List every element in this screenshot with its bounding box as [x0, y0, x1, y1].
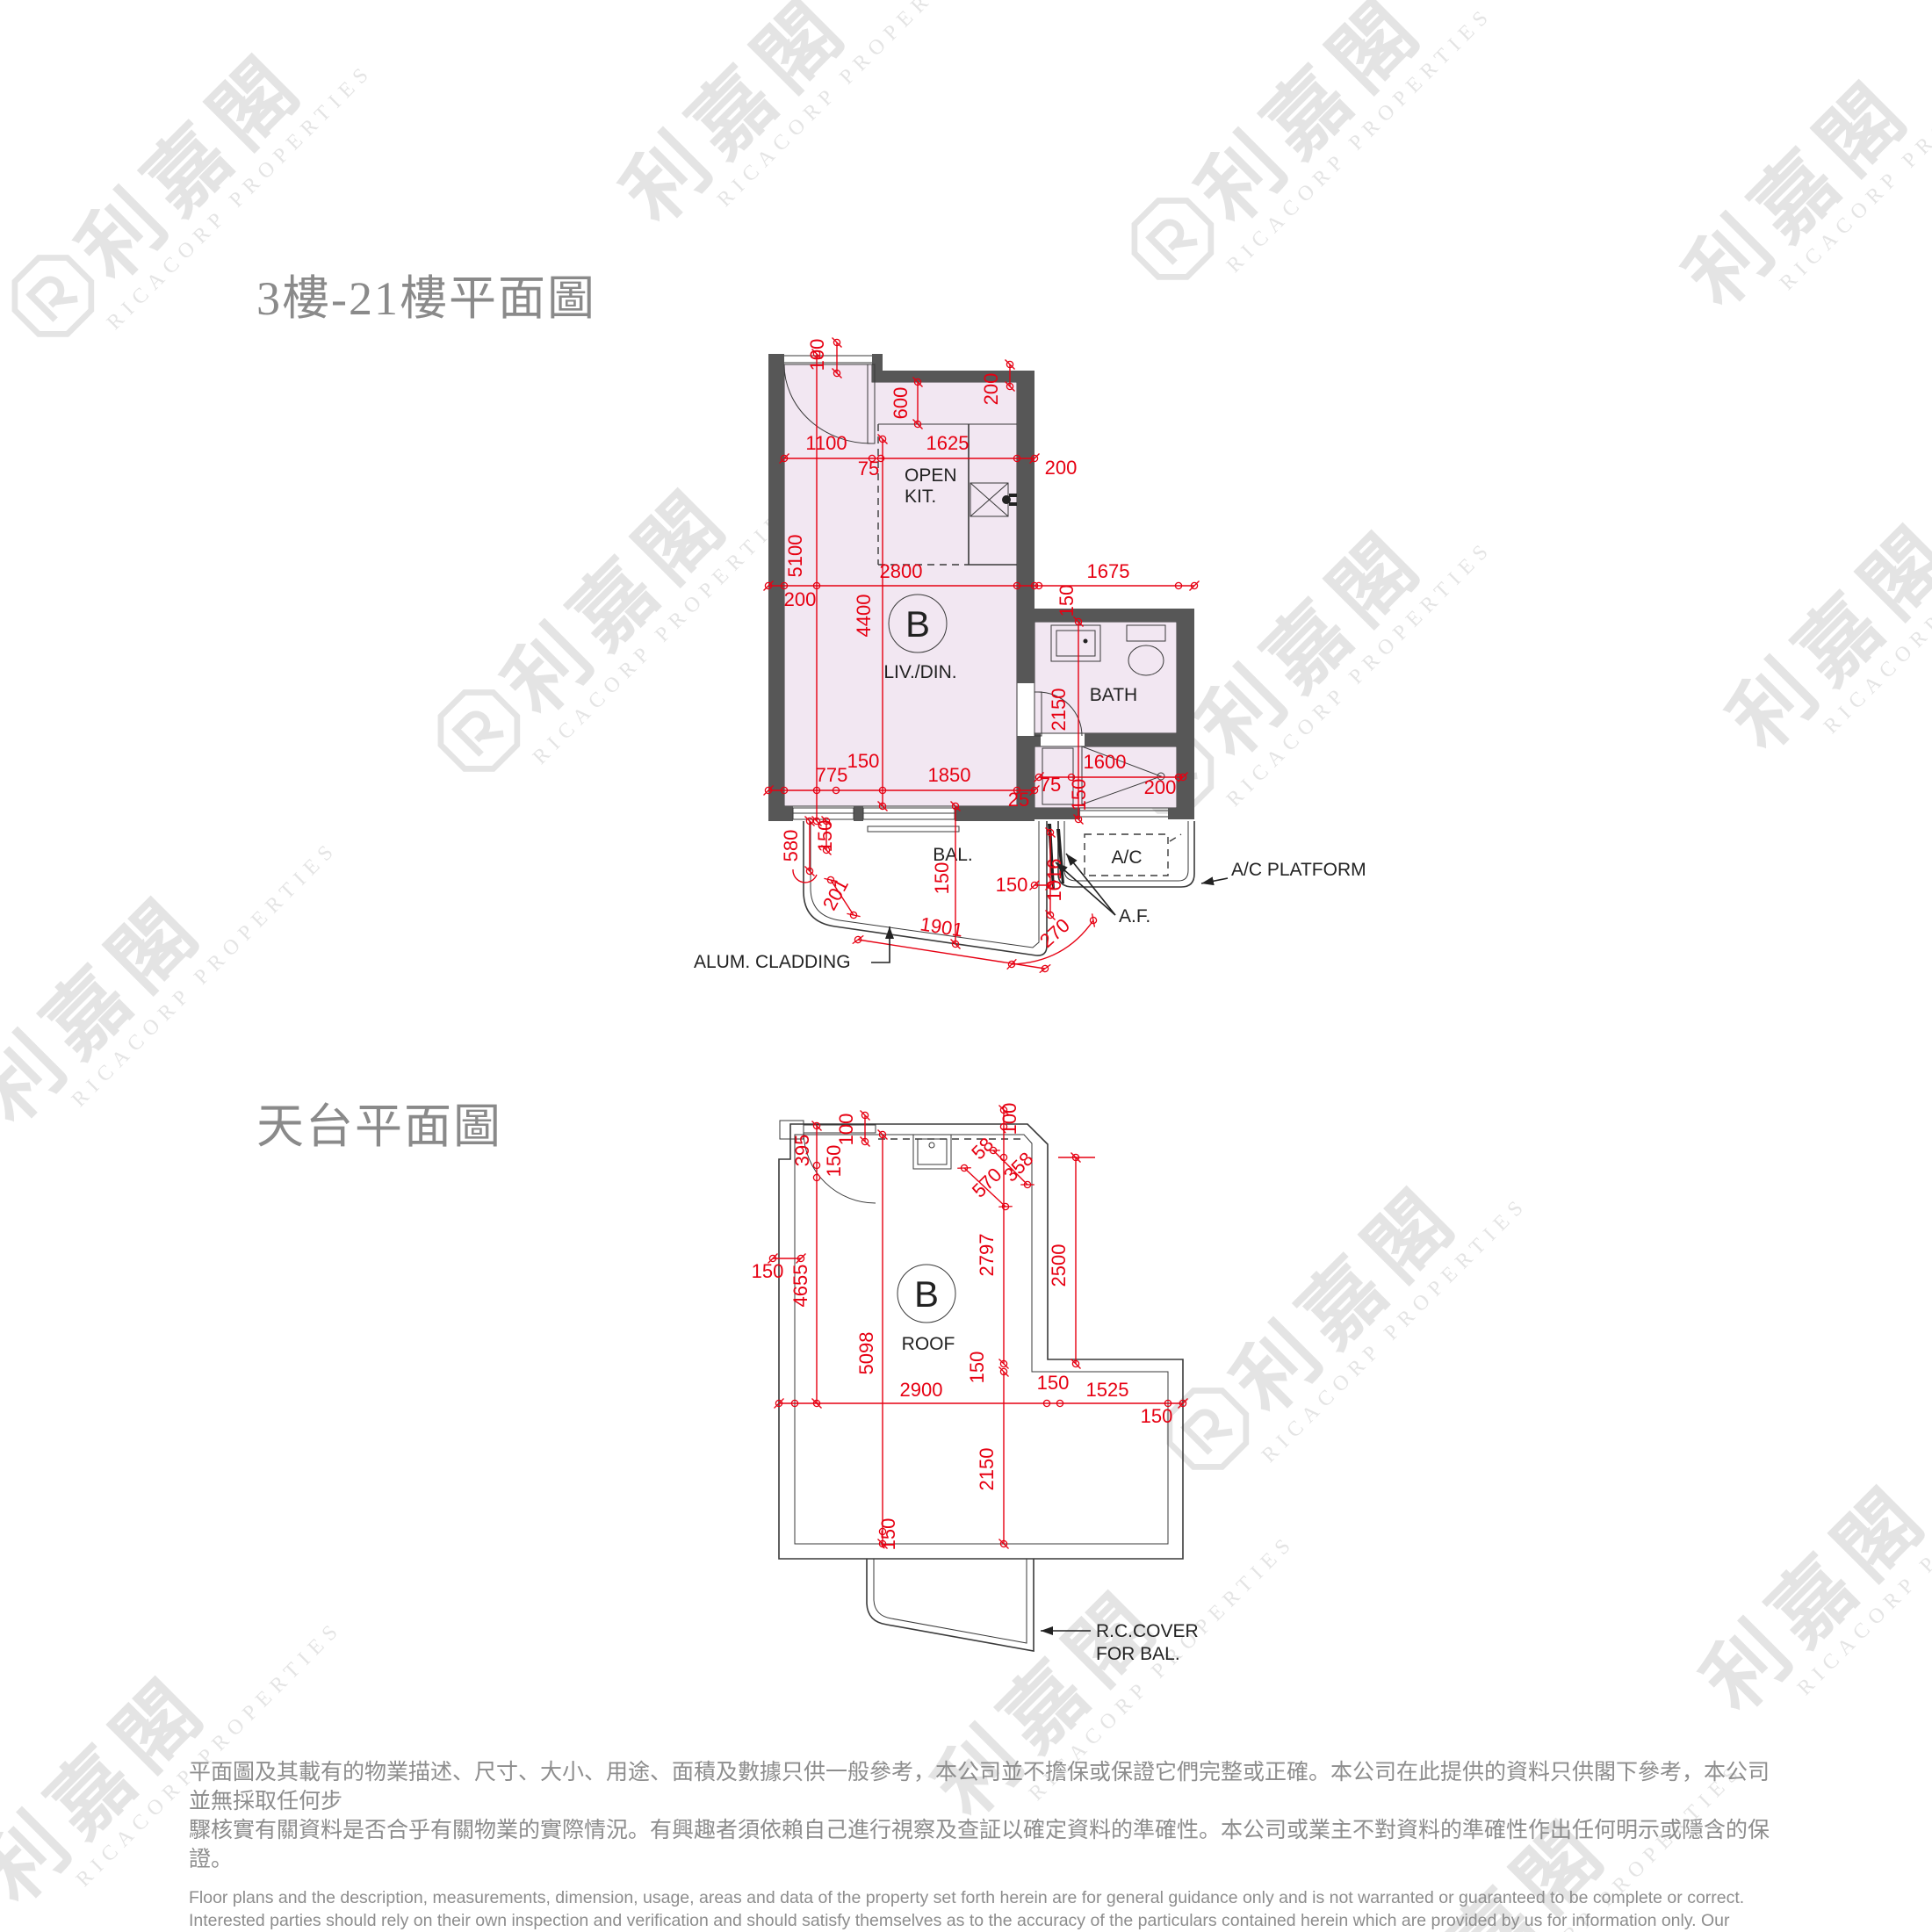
ac-platform-leader: [1201, 878, 1228, 883]
dim: 200: [784, 588, 817, 610]
dim: 1850: [928, 764, 971, 786]
dim: 150: [814, 820, 836, 853]
water-tank: [913, 1135, 951, 1169]
af-label: A.F.: [1119, 906, 1150, 926]
roof-unit-identifier: B ROOF: [898, 1265, 955, 1354]
plan1-title: 3樓-21樓平面圖: [256, 259, 596, 328]
dim: 5100: [784, 535, 806, 578]
dim: 25: [1008, 789, 1029, 811]
dim: 100: [998, 1103, 1020, 1135]
dim: 150: [847, 750, 880, 772]
dim: 395: [791, 1135, 813, 1167]
dim: 2900: [900, 1379, 943, 1401]
ac-dash-leader: [1170, 834, 1181, 841]
watermark: 利嘉閣RICACORP PROPERTIES: [1672, 1347, 1932, 1744]
floor-plan-3f-21f: A/C: [681, 325, 1383, 992]
wall-bath-right: [1177, 622, 1194, 819]
dim: 775: [816, 764, 848, 786]
dim: 1100: [805, 432, 847, 454]
rc-cover: R.C.COVER FOR BAL.: [867, 1559, 1199, 1664]
dim: 600: [890, 387, 912, 420]
dim: 150: [1056, 585, 1078, 617]
dim: 150: [752, 1260, 784, 1282]
alum-cladding-label: ALUM. CLADDING: [694, 952, 851, 972]
ac-label: A/C: [1111, 847, 1142, 868]
plan2-title: 天台平面圖: [256, 1087, 502, 1157]
wall-right-upper: [1017, 382, 1034, 683]
dim: 580: [780, 830, 802, 862]
wall-bath-bottom-b: [1085, 733, 1177, 746]
dim: 1675: [1087, 560, 1130, 582]
dim: 1901: [919, 912, 964, 941]
roof-label: ROOF: [902, 1334, 955, 1354]
disclaimer-zh-line1: 平面圖及其載有的物業描述、尺寸、大小、用途、面積及數據只供一般參考，本公司並不擔…: [189, 1758, 1770, 1816]
faucet-handle: [1009, 494, 1017, 497]
dim: 100: [835, 1114, 857, 1146]
dim: 150: [1068, 779, 1090, 811]
dim: 150: [966, 1352, 988, 1384]
dim: 75: [1040, 774, 1061, 796]
dim: 1016: [1043, 859, 1065, 902]
dim: 200: [980, 373, 1002, 406]
rc-cover-outer: [867, 1559, 1034, 1651]
dim: 58: [967, 1133, 998, 1164]
dim: 2150: [976, 1448, 998, 1491]
faucet-handle: [1009, 502, 1017, 506]
dim: 2797: [976, 1234, 998, 1277]
dim: 1600: [1084, 751, 1127, 773]
disclaimer-en-line2: Interested parties should rely on their …: [189, 1909, 1770, 1932]
unit-letter: B: [905, 603, 930, 645]
roof-dimensions: 395 150 4655 100 5098 150 100 2797 150 2…: [752, 1103, 1183, 1551]
unit-letter: B: [914, 1273, 939, 1315]
wall-door-jamb: [872, 354, 883, 382]
wall-zone-bottom-b: [1168, 808, 1177, 819]
bath-label: BATH: [1090, 685, 1137, 705]
disclaimer-en-line1: Floor plans and the description, measure…: [189, 1886, 1770, 1909]
disclaimer-zh-line2: 驟核實有關資料是否合乎有關物業的實際情況。有興趣者須依賴自己進行視察及查証以確定…: [189, 1816, 1770, 1874]
dim: 2150: [1048, 688, 1070, 732]
dim: 150: [1037, 1372, 1070, 1394]
watermark: 利嘉閣RICACORP PROPERTIES: [1654, 0, 1932, 339]
wall-bottom-b: [854, 806, 863, 821]
tank-outer: [913, 1135, 951, 1169]
wall-kitchen-top: [883, 371, 1034, 382]
livdin-label: LIV./DIN.: [883, 662, 956, 682]
tank-valve: [929, 1143, 934, 1148]
dim: 200: [1144, 776, 1177, 798]
dim: 200: [1045, 457, 1078, 479]
af-leader: [1066, 854, 1115, 915]
bal-label: BAL.: [933, 845, 973, 865]
dim: 150: [877, 1518, 899, 1551]
dim: 1625: [926, 432, 970, 454]
dim: 150: [1141, 1405, 1173, 1427]
disclaimer: 平面圖及其載有的物業描述、尺寸、大小、用途、面積及數據只供一般參考，本公司並不擔…: [189, 1758, 1770, 1932]
wall-bottom-a: [784, 806, 793, 821]
dim: 4655: [789, 1265, 811, 1308]
dim: 2500: [1048, 1244, 1070, 1287]
dim: 2800: [880, 560, 923, 582]
bath-sink-drain: [1084, 639, 1088, 644]
open-kit-label-2: KIT.: [905, 487, 936, 507]
rc-cover-label-1: R.C.COVER: [1096, 1621, 1199, 1641]
balcony-sill: [868, 826, 959, 832]
wall-bath-bottom-a: [1034, 733, 1041, 746]
open-kit-label-1: OPEN: [905, 465, 957, 486]
watermark: 利嘉閣RICACORP PROPERTIES: [1698, 386, 1932, 782]
watermark: 利嘉閣RICACORP PROPERTIES: [592, 0, 989, 256]
floor-plan-page: 利嘉閣 RICACORP PROPERTIES 利嘉閣RICACORP PROP…: [0, 0, 1932, 1932]
dim: 150: [931, 862, 953, 895]
ac-platform-label: A/C PLATFORM: [1231, 860, 1366, 880]
dim: 5098: [855, 1332, 877, 1375]
dim: 4400: [853, 595, 875, 638]
dim: 150: [996, 874, 1028, 896]
rc-cover-inner: [874, 1559, 1027, 1643]
dim: 75: [858, 458, 879, 479]
dim: 1525: [1086, 1379, 1129, 1401]
watermark: 利嘉閣RICACORP PROPERTIES: [1101, 0, 1498, 321]
dim: 150: [823, 1145, 845, 1178]
dim: 201: [818, 875, 853, 913]
floor-plan-roof: B ROOF R.C.COVER FOR BAL. 395 150 4655 1…: [738, 1098, 1247, 1677]
ac-platform: A/C: [1058, 821, 1194, 887]
rc-cover-label-2: FOR BAL.: [1096, 1644, 1180, 1664]
